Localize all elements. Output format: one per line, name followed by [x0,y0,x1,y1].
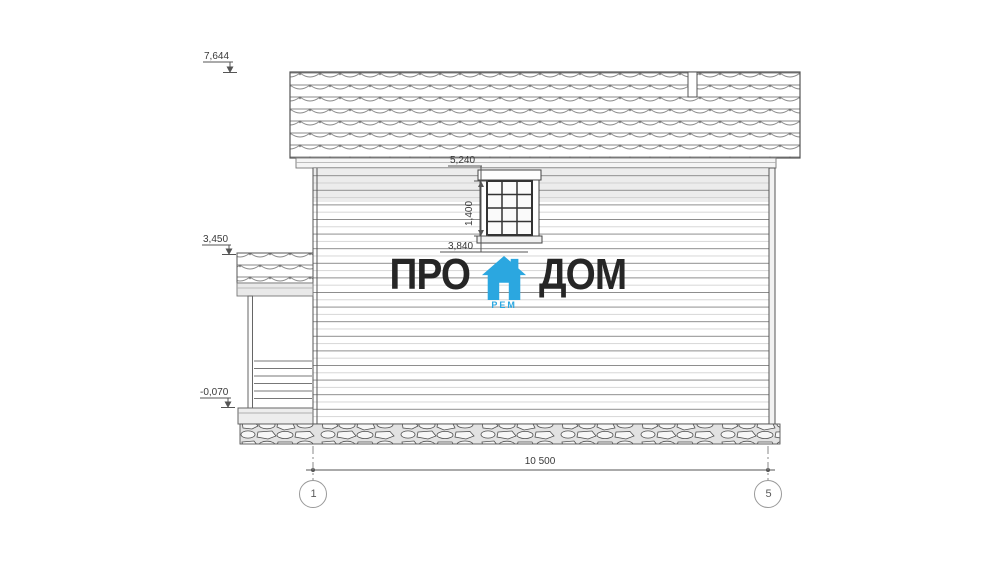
porch-roof [237,253,313,283]
window-sill [477,236,542,243]
dim-label-window-height: 1,400 [465,201,475,226]
axis-number-left: 1 [300,481,327,508]
porch [237,253,313,424]
dim-label-overall-width: 10 500 [480,457,600,467]
porch-railing [254,361,312,399]
logo-subtext: РЕМ [491,300,517,310]
axis-number-right: 5 [755,481,782,508]
porch-fascia [237,283,313,296]
logo-text-pro: ПРО [389,254,470,296]
porch-post [248,296,253,408]
logo: ПРО РЕМ ДОМ [380,254,636,310]
house-icon: РЕМ [480,255,528,301]
elevation-drawing: 7,644 3,450 -0,070 5,240 1,400 3,840 10 … [0,0,1000,563]
porch-floor-slab [238,408,313,424]
dim-label-window-top: 5,240 [450,156,475,166]
roof-vent-pipe [688,72,697,97]
dim-label-ground: -0,070 [200,388,228,398]
dim-label-porch-roof: 3,450 [203,235,228,245]
foundation [240,424,780,444]
logo-text-dom: ДОМ [539,254,626,296]
roof [290,72,800,158]
dim-label-roof-peak: 7,644 [204,52,229,62]
eaves-fascia [296,158,776,168]
window-head-casing [478,170,541,180]
